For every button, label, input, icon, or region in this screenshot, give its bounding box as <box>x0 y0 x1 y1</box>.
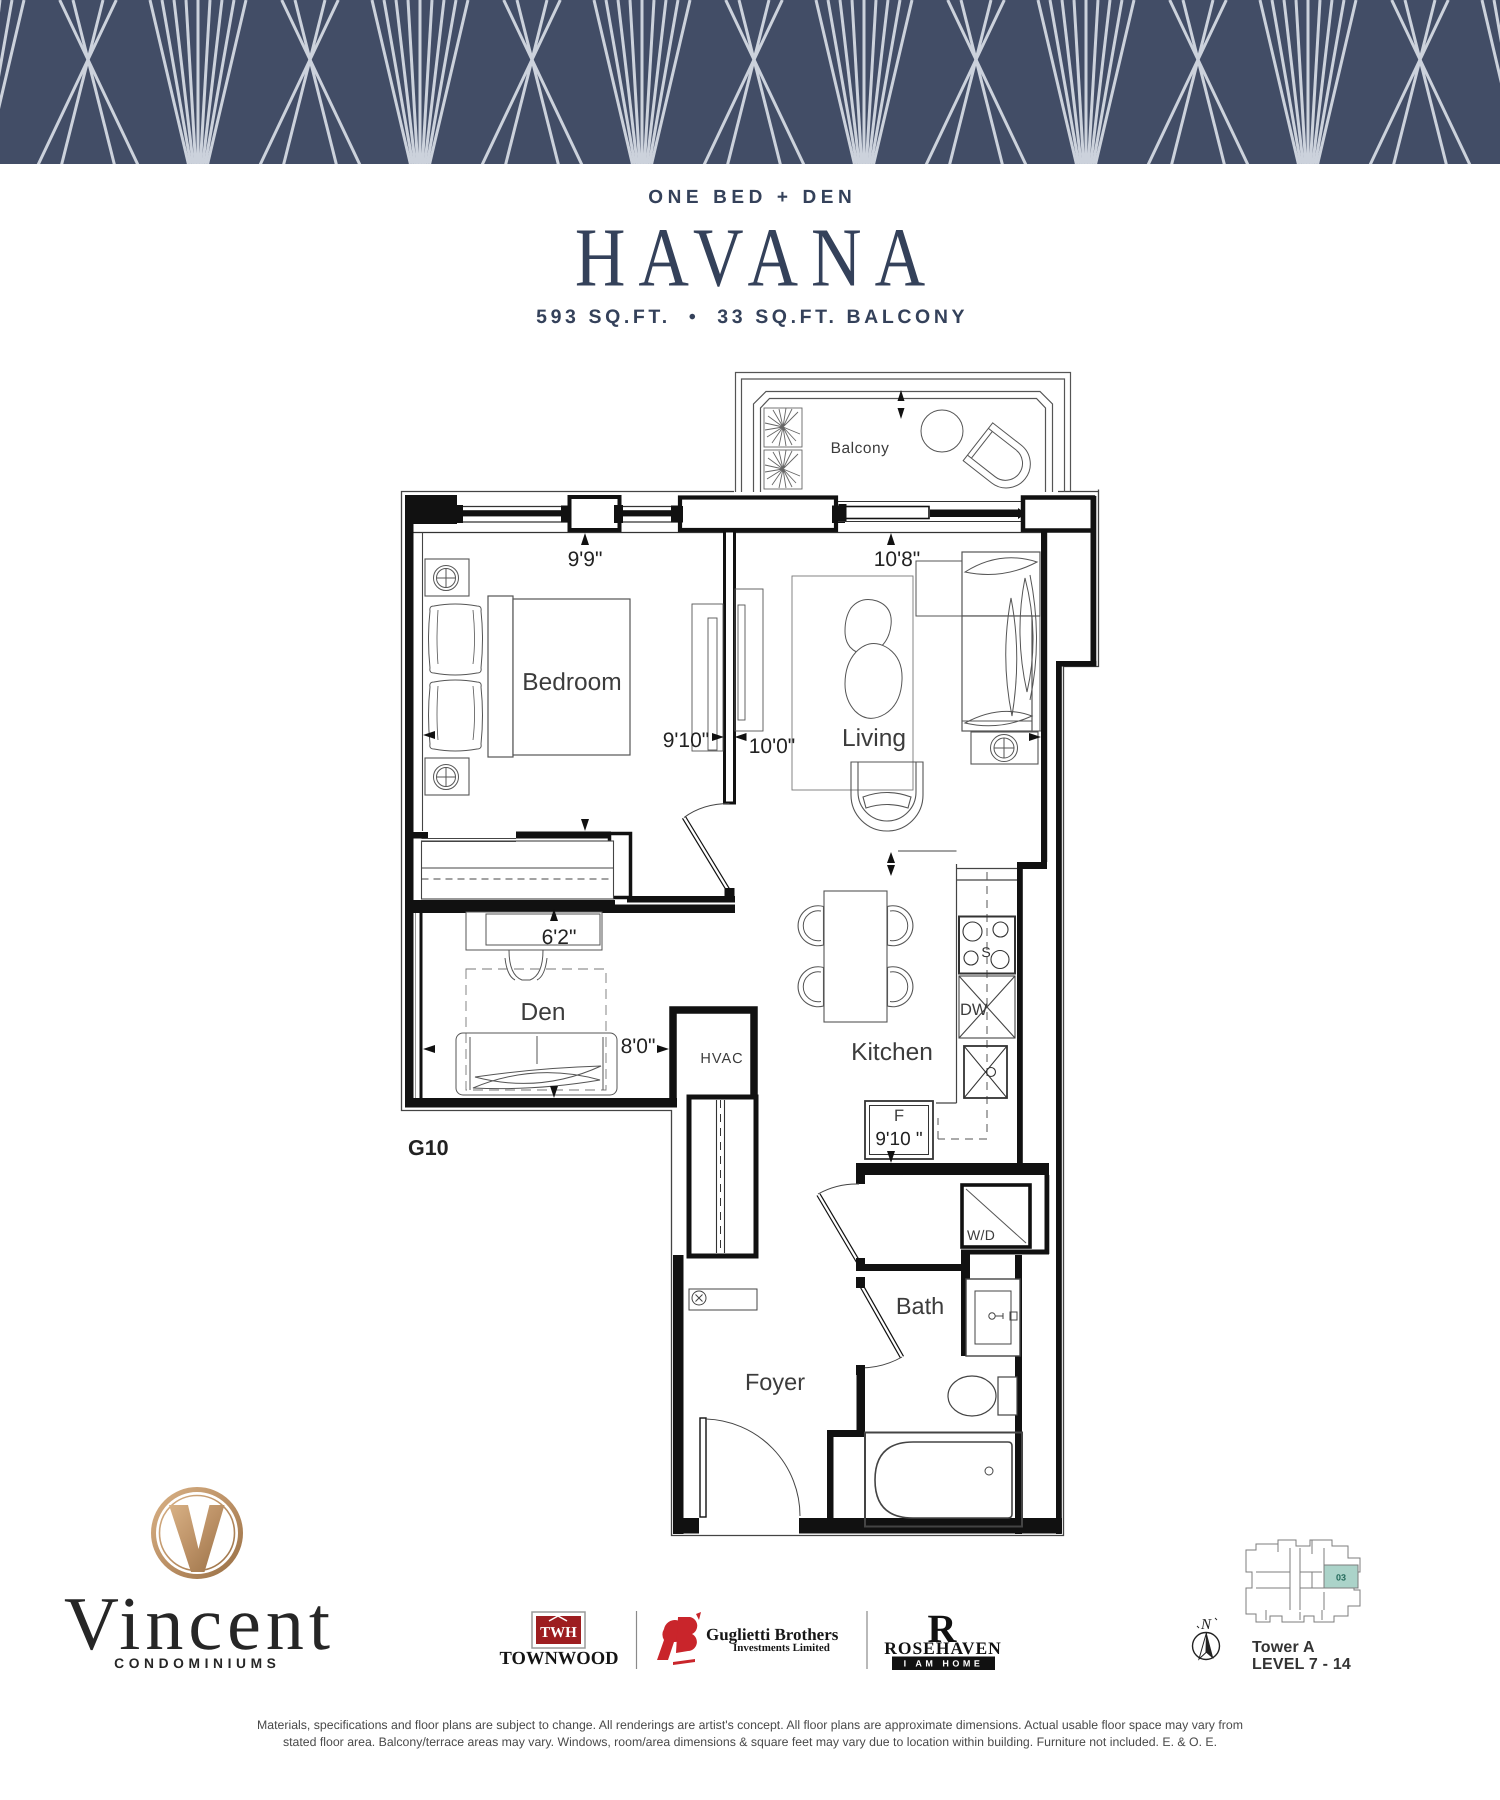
svg-text:9'9": 9'9" <box>568 548 603 571</box>
svg-text:W/D: W/D <box>967 1227 995 1243</box>
svg-text:9'10": 9'10" <box>663 729 710 752</box>
svg-text:F: F <box>894 1107 904 1125</box>
svg-text:LEVEL 7 - 14: LEVEL 7 - 14 <box>1252 1656 1351 1673</box>
svg-text:Investments Limited: Investments Limited <box>733 1642 830 1654</box>
svg-text:TWH: TWH <box>540 1625 577 1641</box>
svg-text:N: N <box>1200 1617 1212 1633</box>
svg-text:Bath: Bath <box>896 1293 944 1319</box>
svg-text:Den: Den <box>521 999 566 1026</box>
svg-text:10'0": 10'0" <box>749 735 796 758</box>
svg-text:9'10 ": 9'10 " <box>875 1129 922 1150</box>
svg-text:I AM HOME: I AM HOME <box>904 1659 984 1669</box>
svg-text:G10: G10 <box>408 1136 449 1160</box>
svg-text:Living: Living <box>842 725 906 752</box>
svg-text:Bedroom: Bedroom <box>522 669 621 696</box>
svg-text:Vincent: Vincent <box>64 1582 335 1666</box>
svg-text:DW: DW <box>960 1001 988 1019</box>
svg-text:CONDOMINIUMS: CONDOMINIUMS <box>114 1656 280 1671</box>
svg-text:HVAC: HVAC <box>700 1051 743 1067</box>
svg-text:Balcony: Balcony <box>831 440 890 457</box>
svg-text:8'0": 8'0" <box>621 1035 656 1058</box>
svg-text:10'8": 10'8" <box>874 548 921 571</box>
svg-text:Kitchen: Kitchen <box>851 1039 933 1066</box>
svg-text:ROSEHAVEN: ROSEHAVEN <box>884 1638 1002 1658</box>
svg-text:Foyer: Foyer <box>745 1369 805 1395</box>
svg-text:TOWNWOOD: TOWNWOOD <box>500 1649 619 1669</box>
svg-text:S: S <box>981 944 990 960</box>
svg-text:Tower A: Tower A <box>1252 1639 1315 1656</box>
svg-text:6'2": 6'2" <box>542 926 577 949</box>
svg-text:03: 03 <box>1336 1573 1346 1583</box>
